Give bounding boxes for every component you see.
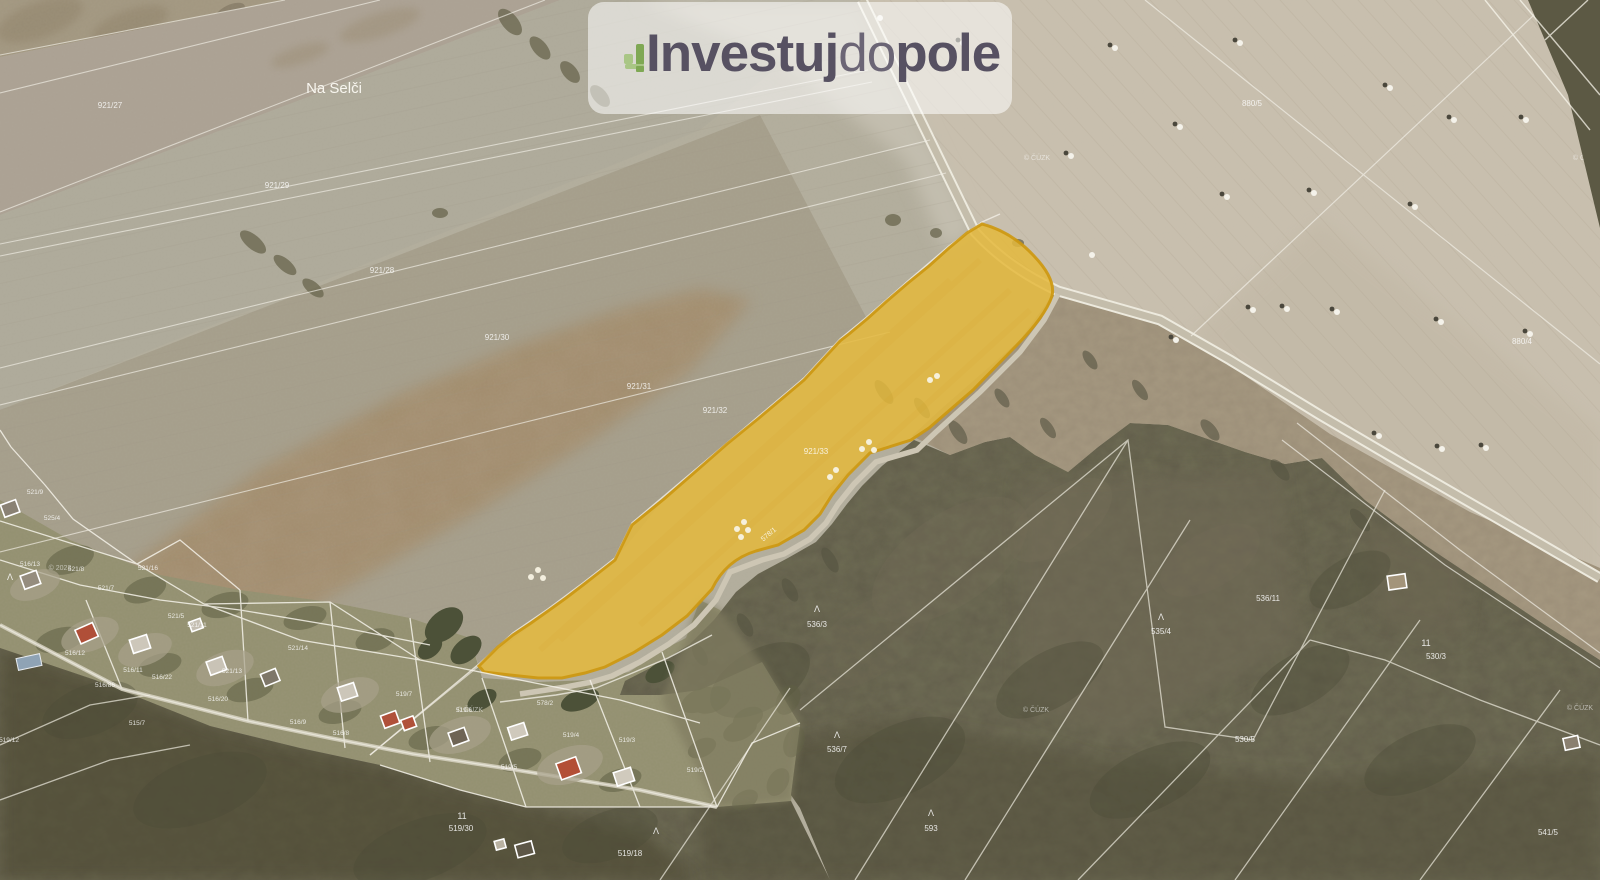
svg-text:519/4: 519/4	[563, 732, 580, 739]
svg-text:Λ: Λ	[928, 808, 934, 818]
svg-text:521/11: 521/11	[187, 622, 207, 629]
svg-text:535/4: 535/4	[1151, 627, 1172, 636]
svg-text:516/22: 516/22	[152, 674, 172, 681]
svg-text:536/11: 536/11	[1256, 594, 1280, 603]
svg-text:516/8: 516/8	[333, 730, 350, 737]
svg-text:521/14: 521/14	[288, 645, 308, 652]
svg-text:521/7: 521/7	[98, 585, 115, 592]
svg-text:541/5: 541/5	[1538, 828, 1559, 837]
svg-text:Λ: Λ	[7, 572, 13, 582]
svg-text:530/3: 530/3	[1426, 652, 1447, 661]
svg-text:Λ: Λ	[1158, 612, 1164, 622]
svg-text:519/5: 519/5	[501, 764, 518, 771]
svg-text:536/3: 536/3	[807, 620, 828, 629]
svg-text:516/86: 516/86	[95, 682, 115, 689]
svg-text:© ČÚZK: © ČÚZK	[1567, 703, 1593, 712]
svg-text:Investujdopole: Investujdopole	[646, 24, 1000, 83]
svg-text:© ČÚZK: © ČÚZK	[1023, 705, 1049, 714]
svg-text:921/30: 921/30	[485, 333, 510, 342]
svg-text:921/32: 921/32	[703, 406, 728, 415]
svg-text:515/7: 515/7	[129, 720, 146, 727]
svg-text:11: 11	[457, 811, 466, 821]
svg-text:Λ: Λ	[834, 730, 840, 740]
svg-text:593: 593	[924, 824, 938, 833]
svg-text:521/5: 521/5	[168, 613, 185, 620]
svg-text:11: 11	[1421, 638, 1430, 648]
svg-text:516/12: 516/12	[65, 650, 85, 657]
svg-text:521/9: 521/9	[27, 489, 44, 496]
svg-text:© 2023: © 2023	[49, 564, 72, 572]
svg-text:519/2: 519/2	[687, 767, 704, 774]
svg-text:880/5: 880/5	[1242, 99, 1263, 108]
svg-text:519/18: 519/18	[618, 849, 643, 858]
svg-text:516/20: 516/20	[208, 696, 228, 703]
svg-text:521/13: 521/13	[222, 668, 242, 675]
svg-text:921/27: 921/27	[98, 101, 123, 110]
svg-text:519/3: 519/3	[619, 737, 636, 744]
svg-text:519/7: 519/7	[396, 691, 413, 698]
svg-text:530/5: 530/5	[1235, 735, 1256, 744]
svg-text:516/13: 516/13	[20, 561, 40, 568]
svg-text:© ČÚZK: © ČÚZK	[457, 705, 483, 714]
svg-text:921/31: 921/31	[627, 382, 652, 391]
svg-text:921/33: 921/33	[804, 447, 829, 456]
svg-text:516/11: 516/11	[123, 667, 143, 674]
svg-text:921/28: 921/28	[370, 266, 395, 275]
svg-text:921/29: 921/29	[265, 181, 290, 190]
svg-text:519/12: 519/12	[0, 737, 19, 744]
svg-text:Λ: Λ	[653, 826, 659, 836]
svg-text:578/2: 578/2	[537, 700, 554, 707]
svg-text:© ČÚZK: © ČÚZK	[1024, 153, 1050, 162]
svg-text:880/4: 880/4	[1512, 337, 1533, 346]
svg-text:Λ: Λ	[814, 604, 820, 614]
svg-text:519/30: 519/30	[449, 824, 474, 833]
svg-text:Na Selči: Na Selči	[306, 80, 362, 97]
svg-text:525/4: 525/4	[44, 515, 61, 522]
svg-text:521/16: 521/16	[138, 565, 158, 572]
svg-text:516/9: 516/9	[290, 719, 307, 726]
svg-text:536/7: 536/7	[827, 745, 848, 754]
